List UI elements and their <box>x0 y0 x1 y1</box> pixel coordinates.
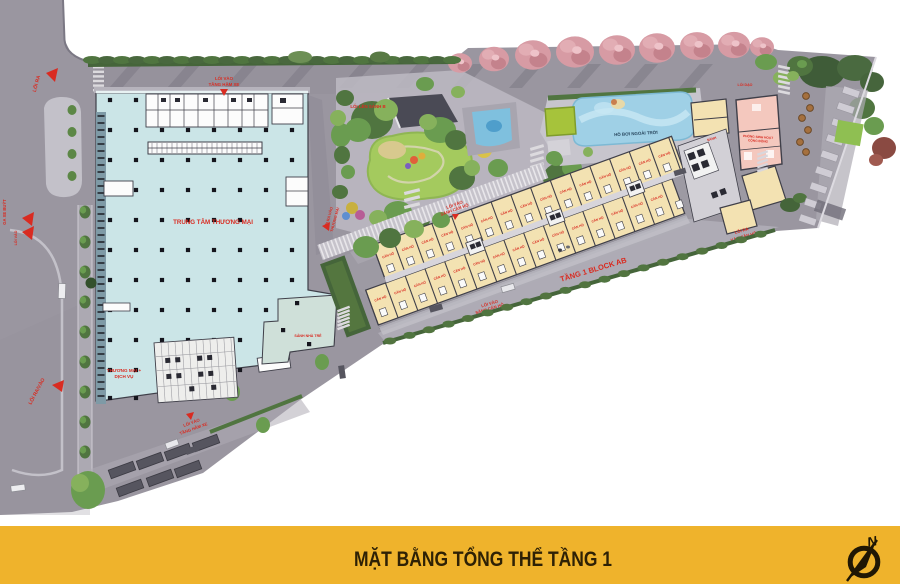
svg-text:MẶT BẰNG TỔNG THỂ TẦNG 1: MẶT BẰNG TỔNG THỂ TẦNG 1 <box>354 547 612 571</box>
svg-text:GA XE BUÝT: GA XE BUÝT <box>2 199 7 225</box>
svg-text:THƯƠNG MẠI +: THƯƠNG MẠI + <box>107 368 142 373</box>
svg-text:TRUNG TÂM THƯƠNG MẠI: TRUNG TÂM THƯƠNG MẠI <box>173 219 253 226</box>
svg-text:LỐI DẠO: LỐI DẠO <box>738 82 753 87</box>
svg-text:DỊCH VỤ: DỊCH VỤ <box>115 374 135 379</box>
svg-text:LỐI VÀO: LỐI VÀO <box>215 76 234 81</box>
svg-text:SẢNH NHÀ TRẺ: SẢNH NHÀ TRẺ <box>294 333 322 338</box>
svg-text:LỐI VÀO: LỐI VÀO <box>13 230 18 245</box>
svg-text:TẦNG HẦM XE: TẦNG HẦM XE <box>209 82 240 87</box>
svg-text:LỐI LÊN SẢNH B: LỐI LÊN SẢNH B <box>350 104 385 109</box>
